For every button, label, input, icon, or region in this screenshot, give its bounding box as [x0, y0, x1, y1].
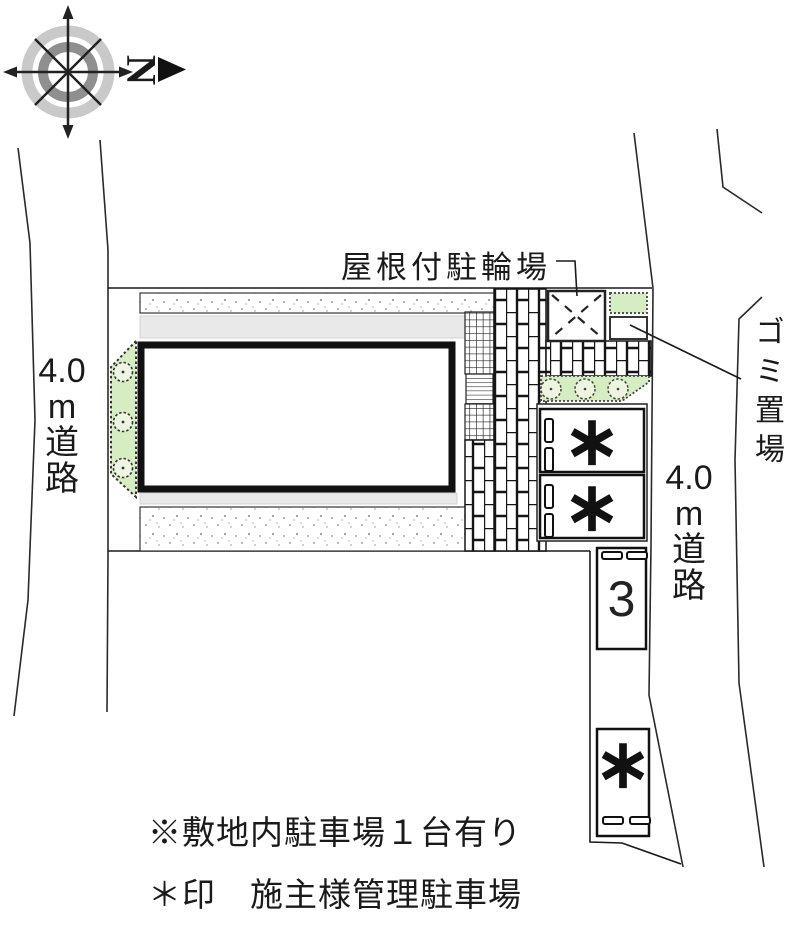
brick-walk-east: [546, 341, 651, 376]
tree-center-dot: [122, 467, 125, 470]
right-road-label: 4.0 m 道 路: [659, 460, 719, 604]
right-road-width: 4.0: [665, 460, 712, 496]
left-road-unit: m: [48, 389, 76, 425]
entrance-steps: [466, 374, 493, 404]
grid-paving-upper: [465, 312, 494, 374]
parking-stall-1-mark: ∗: [540, 409, 644, 472]
building-outline: [141, 345, 452, 489]
gravel-band-bottom: [140, 507, 497, 551]
grid-paving-lower: [465, 404, 494, 440]
tree-center-dot: [122, 371, 125, 374]
north-letter: N: [118, 48, 162, 92]
hedge-planting: [610, 293, 647, 313]
left-road-char: 道: [45, 425, 79, 461]
bush-center-dot: [550, 388, 553, 391]
compass-arrowhead: [63, 5, 74, 19]
right-road-outer-edge-top: [717, 129, 762, 213]
compass-rose: [3, 5, 133, 139]
parking-stall-4-mark: ∗: [597, 729, 649, 836]
note-parking-count: ※敷地内駐車場１台有り: [148, 806, 522, 854]
bush-center-dot: [617, 388, 620, 391]
brick-walk-side: [465, 440, 494, 551]
gravel-band-top: [140, 293, 497, 313]
planting-strip-west: [111, 341, 136, 497]
bicycle-parking-label: 屋根付駐輪場: [341, 242, 551, 287]
parking-stall-3-number: 3: [597, 548, 646, 649]
right-road-char: 路: [672, 568, 706, 604]
compass-arrowhead: [63, 125, 74, 139]
parking-stall-2-mark: ∗: [540, 475, 644, 538]
bicycle-parking-structure: [548, 261, 605, 341]
bush-center-dot: [584, 388, 587, 391]
note-owner-managed: ＊印 施主様管理駐車場: [148, 868, 522, 916]
garbage-area-label: ゴミ置場: [744, 316, 788, 486]
left-road-label: 4.0 m 道 路: [30, 353, 94, 497]
site-plan-drawing: N 屋根付駐輪場 ゴミ置場 4.0 m 道 路 4.0 m 道 路 ∗ ∗ 3 …: [0, 0, 800, 941]
right-road-char: 道: [672, 532, 706, 568]
left-road-inner-edge: [100, 140, 108, 712]
gray-band-bottom: [140, 493, 457, 504]
garbage-area: [610, 317, 647, 339]
gray-band-top: [140, 316, 465, 338]
bush-strip: [541, 376, 649, 401]
right-road-unit: m: [675, 496, 703, 532]
left-road-char: 路: [45, 461, 79, 497]
left-road-width: 4.0: [38, 353, 85, 389]
tree-center-dot: [122, 421, 125, 424]
compass-arrowhead: [3, 67, 17, 78]
